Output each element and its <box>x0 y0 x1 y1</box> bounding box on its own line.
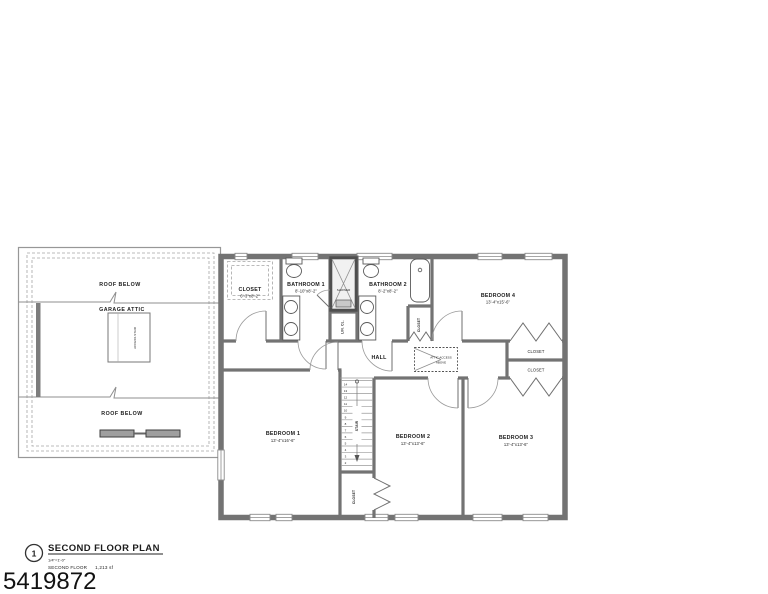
toilet-tank <box>363 258 379 264</box>
tread-number: 4 <box>345 448 347 452</box>
floor-plan-drawing: ROOF BELOW GARAGE ATTIC ACCESS STAIR ROO… <box>0 0 768 594</box>
bedroom1-label: BEDROOM 1 <box>266 431 300 437</box>
toilet-tank <box>286 258 302 264</box>
access-stair-label: ACCESS STAIR <box>133 326 137 349</box>
main-plan: SHOWER LIN. CL. A <box>218 253 566 520</box>
title-block: 1 SECOND FLOOR PLAN 1/4"=1'-0" SECOND FL… <box>26 543 164 570</box>
bedroom4-dims: 13'-4"x15'-6" <box>486 300 511 305</box>
sink <box>361 323 374 336</box>
bathtub <box>411 259 430 302</box>
floor-plan-sheet: ROOF BELOW GARAGE ATTIC ACCESS STAIR ROO… <box>0 0 768 594</box>
tread-number: 13 <box>344 389 348 393</box>
bedroom3-dims: 13'-4"x13'-6" <box>504 442 529 447</box>
left-wing: ROOF BELOW GARAGE ATTIC ACCESS STAIR ROO… <box>19 248 221 458</box>
tread-number: 10 <box>344 409 348 413</box>
tread-number: 14 <box>344 383 348 387</box>
plan-title: SECOND FLOOR PLAN <box>48 543 160 554</box>
bathroom1-label: BATHROOM 1 <box>287 282 325 288</box>
bathroom1-dims: 8'-10"x8'-2" <box>295 289 317 294</box>
shower-door <box>317 295 330 308</box>
attic-access-stair: ACCESS STAIR <box>108 313 150 362</box>
bedroom4-closet-label: CLOSET <box>528 349 545 354</box>
bedroom2-closet-label: CLOSET <box>352 490 356 504</box>
toilet-bowl <box>287 265 302 278</box>
shower-label: SHOWER <box>337 288 351 292</box>
toilet-bowl <box>364 265 379 278</box>
bedroom1-dims: 13'-4"x16'-6" <box>271 438 296 443</box>
attic-access-label-2: ABOVE <box>436 361 446 365</box>
sink <box>285 301 298 314</box>
tread-number: 5 <box>345 441 347 445</box>
tread-number: 8 <box>345 422 347 426</box>
roof-below-top-label: ROOF BELOW <box>99 282 141 288</box>
stair: 141312111098765432 STAIR <box>340 378 374 466</box>
bedroom2-dims: 13'-4"x13'-6" <box>401 441 426 446</box>
shower-seat <box>336 300 351 307</box>
attic-access-label-1: ATTIC ACCESS <box>430 356 451 360</box>
plan-scale: 1/4"=1'-0" <box>48 558 66 563</box>
tread-number: 7 <box>345 428 347 432</box>
linen-closet-label: LIN. CL. <box>341 320 345 334</box>
sink <box>285 323 298 336</box>
floor-area: 1,213 sf <box>95 565 113 570</box>
closet-main-label: CLOSET <box>239 287 262 293</box>
tread-number: 3 <box>345 455 347 459</box>
hall-label: HALL <box>371 355 387 361</box>
bedroom3-label: BEDROOM 3 <box>499 435 533 441</box>
tread-number: 11 <box>344 402 347 406</box>
closet-main-dims: 6'-3"x8'-2" <box>240 294 260 299</box>
bathroom2-label: BATHROOM 2 <box>369 282 407 288</box>
stair-direction-arrow <box>355 455 360 462</box>
bedroom3-closet-label: CLOSET <box>528 368 545 373</box>
tread-number: 9 <box>345 415 347 419</box>
detail-number: 1 <box>32 549 37 559</box>
bedroom4-label: BEDROOM 4 <box>481 293 515 299</box>
photo-id: 5419872 <box>3 568 96 594</box>
wing-wall-segment <box>36 303 41 397</box>
sink <box>361 301 374 314</box>
bathroom2-closet-label: CLOSET <box>417 318 421 332</box>
bedroom2-label: BEDROOM 2 <box>396 434 430 440</box>
roof-below-bottom-label: ROOF BELOW <box>101 411 143 417</box>
bathroom2-dims: 8'-2"x8'-2" <box>378 289 398 294</box>
garage-attic-label: GARAGE ATTIC <box>99 307 145 313</box>
tread-number: 6 <box>345 435 347 439</box>
bathroom1-fixtures <box>283 258 302 340</box>
attic-access-hatch: ATTIC ACCESS ABOVE <box>415 348 458 372</box>
tread-number: 12 <box>344 396 348 400</box>
stair-label: STAIR <box>355 420 359 431</box>
tread-number: 2 <box>345 461 347 465</box>
